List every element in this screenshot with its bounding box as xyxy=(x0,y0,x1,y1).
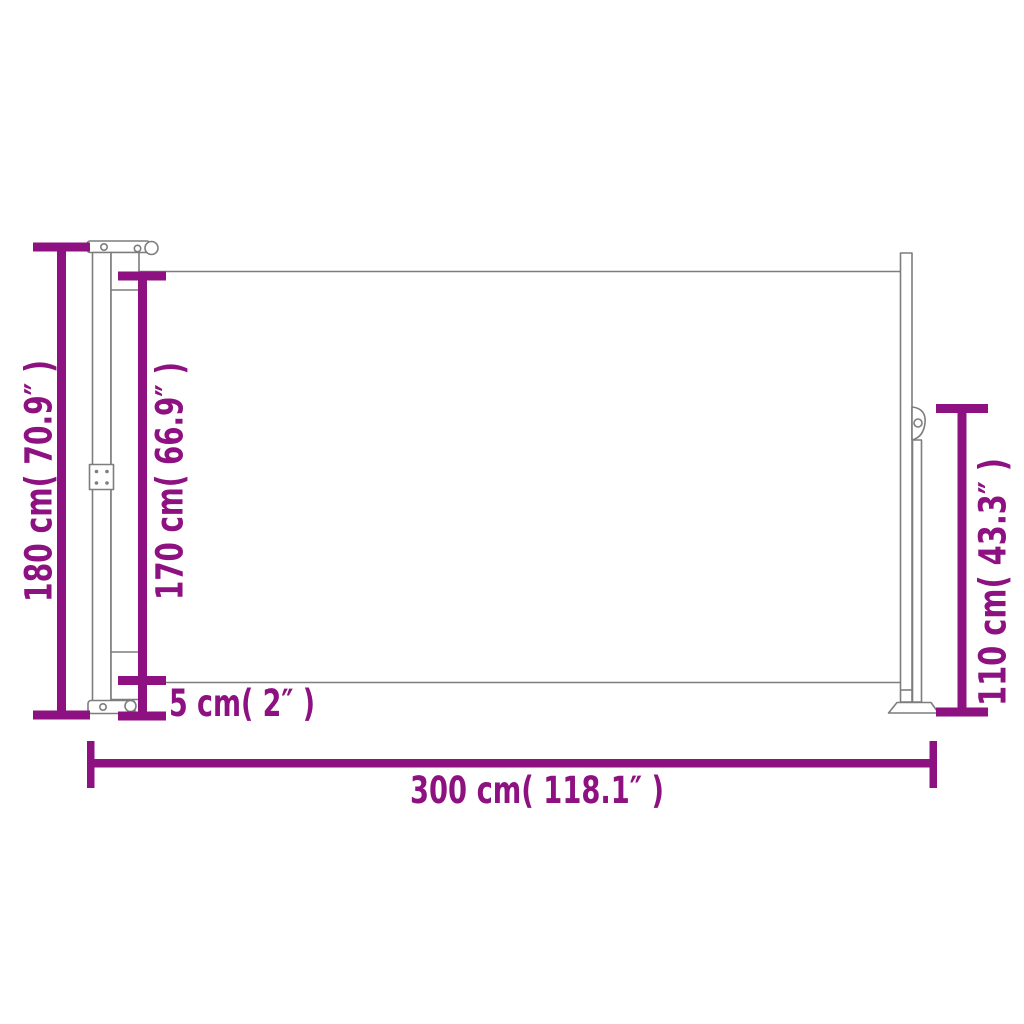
bracket-screw-icon xyxy=(105,470,109,474)
foot-screw-icon xyxy=(100,704,106,710)
post-foot-plate xyxy=(889,703,939,714)
dim-total-width: 300 cm( 118.1″ ) xyxy=(87,741,937,812)
wall-bracket xyxy=(90,465,114,490)
label-total-height: 180 cm( 70.9″ ) xyxy=(18,360,61,602)
cassette-post xyxy=(87,241,158,714)
label-fabric-height: 170 cm( 66.9″ ) xyxy=(149,362,192,600)
handle-knob-icon xyxy=(914,419,922,427)
label-post-height: 110 cm( 43.3″ ) xyxy=(972,458,1015,706)
label-bottom-gap: 5 cm( 2″ ) xyxy=(169,682,315,725)
pull-post xyxy=(889,253,939,713)
dim-fabric-height: 170 cm( 66.9″ ) 5 cm( 2″ ) xyxy=(118,272,315,726)
dim-cap xyxy=(930,741,938,788)
dim-cap xyxy=(118,676,166,685)
dim-post-height: 110 cm( 43.3″ ) xyxy=(936,404,1015,717)
screw-icon xyxy=(134,245,140,251)
dim-line xyxy=(138,272,147,721)
dim-cap xyxy=(936,708,988,717)
dim-cap xyxy=(118,712,166,721)
label-total-width: 300 cm( 118.1″ ) xyxy=(410,769,664,812)
fabric-panel xyxy=(139,272,901,683)
bracket-screw-icon xyxy=(105,481,109,485)
bracket-screw-icon xyxy=(95,470,99,474)
dim-total-height: 180 cm( 70.9″ ) xyxy=(18,243,91,720)
foot-end-lobe xyxy=(125,701,136,712)
support-leg xyxy=(913,440,922,702)
dim-cap xyxy=(33,711,90,720)
roller-column xyxy=(111,253,139,700)
awning-dimension-diagram: 180 cm( 70.9″ ) 170 cm( 66.9″ ) 5 cm( 2″… xyxy=(0,0,1024,1024)
side-awning-drawing xyxy=(87,241,939,714)
cassette-cap-end-lobe xyxy=(145,242,158,255)
screw-icon xyxy=(101,244,107,250)
dim-line xyxy=(958,404,967,716)
dim-line xyxy=(91,759,935,768)
pull-post-body xyxy=(901,253,913,702)
bracket-screw-icon xyxy=(95,481,99,485)
